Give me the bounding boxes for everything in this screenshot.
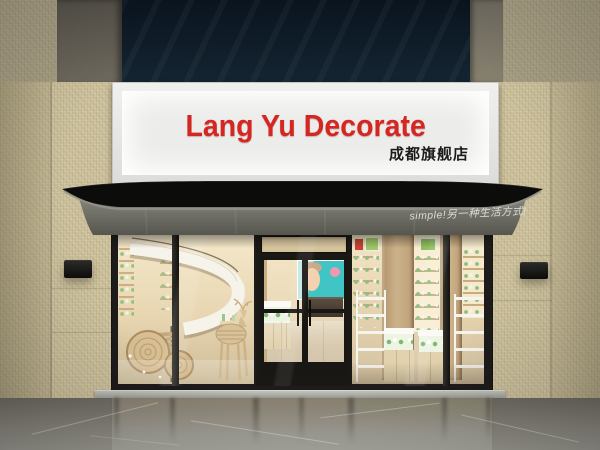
door-center-stile — [302, 257, 308, 378]
left-display-window — [118, 234, 254, 384]
door-right-midrail — [308, 309, 346, 313]
top-right-tile-wall — [503, 0, 600, 85]
top-left-tile-wall — [0, 0, 57, 85]
mullion-reflection-5 — [348, 398, 354, 444]
storefront-glazing — [112, 230, 492, 392]
right-wall-lamp — [520, 262, 548, 279]
entrance-door-unit — [256, 230, 352, 386]
mullion-reflection-4 — [299, 398, 304, 442]
right-display-window — [352, 234, 484, 384]
left-wall-grout-2 — [52, 332, 112, 333]
top-right-pillar — [470, 0, 503, 85]
awning-roof — [62, 181, 543, 207]
right-wall-grout-2 — [492, 300, 552, 301]
top-fascia-panel — [122, 0, 470, 85]
sign-title: Lang Yu Decorate — [185, 108, 425, 144]
storefront-signboard: Lang Yu Decorate 成都旗舰店 — [112, 82, 499, 186]
window-mullion-right — [443, 230, 450, 386]
door-bottom-rail — [261, 362, 347, 378]
door-handle-left — [297, 300, 299, 326]
right-window-floor-shadow — [352, 362, 484, 384]
left-wall-grout-1 — [52, 288, 112, 289]
right-wall-grout-1 — [492, 255, 552, 256]
mullion-reflection-6 — [442, 398, 447, 442]
window-mullion-left — [172, 230, 179, 386]
right-wall-side-shade — [552, 82, 600, 400]
left-wall-seam — [50, 82, 52, 400]
floor-shade-left — [0, 398, 112, 450]
storefront-scene: Lang Yu Decorate 成都旗舰店 — [0, 0, 600, 450]
left-wall-lamp — [64, 260, 92, 278]
signboard-lightbox-face: Lang Yu Decorate 成都旗舰店 — [122, 91, 489, 175]
sign-subtitle: 成都旗舰店 — [389, 143, 469, 164]
mullion-reflection-2 — [170, 398, 175, 442]
wall-shelf-column-2 — [415, 252, 439, 330]
right-wall-seam — [550, 82, 552, 400]
top-left-pillar — [57, 0, 122, 85]
left-wall-side-shade — [0, 82, 50, 400]
left-window-floor-sheen — [118, 360, 254, 384]
door-handle-right — [309, 300, 311, 326]
mullion-reflection-3 — [253, 398, 259, 444]
floor-shade-right — [492, 398, 600, 450]
marble-floor — [0, 398, 600, 450]
